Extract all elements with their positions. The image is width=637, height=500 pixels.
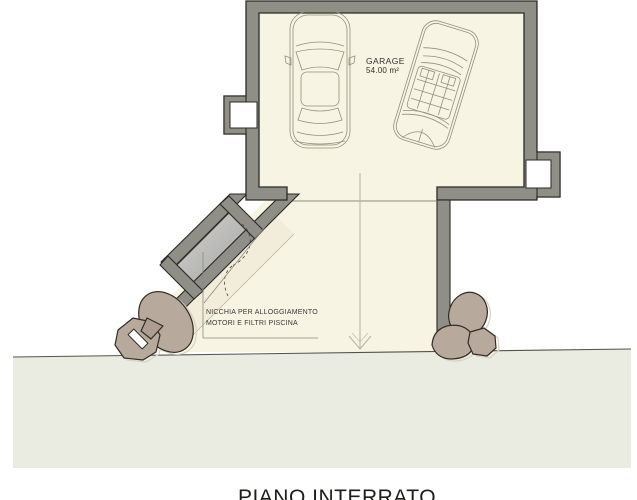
- garage-floor: [259, 13, 524, 200]
- ground: [13, 349, 631, 468]
- niche-annotation: NICCHIA PER ALLOGGIAMENTOMOTORI E FILTRI…: [206, 307, 318, 329]
- plan-title: PIANO INTERRATO: [227, 486, 447, 500]
- garage-room-label: GARAGE: [366, 56, 405, 66]
- garage-area-label: 54.00 m²: [366, 66, 399, 75]
- left-window: [224, 96, 257, 134]
- niche-annotation-line2: MOTORI E FILTRI PISCINA: [206, 320, 298, 327]
- plan-drawing: [0, 0, 637, 500]
- niche-annotation-line1: NICCHIA PER ALLOGGIAMENTO: [206, 309, 318, 316]
- floor-plan-canvas: GARAGE 54.00 m² NICCHIA PER ALLOGGIAMENT…: [0, 0, 637, 500]
